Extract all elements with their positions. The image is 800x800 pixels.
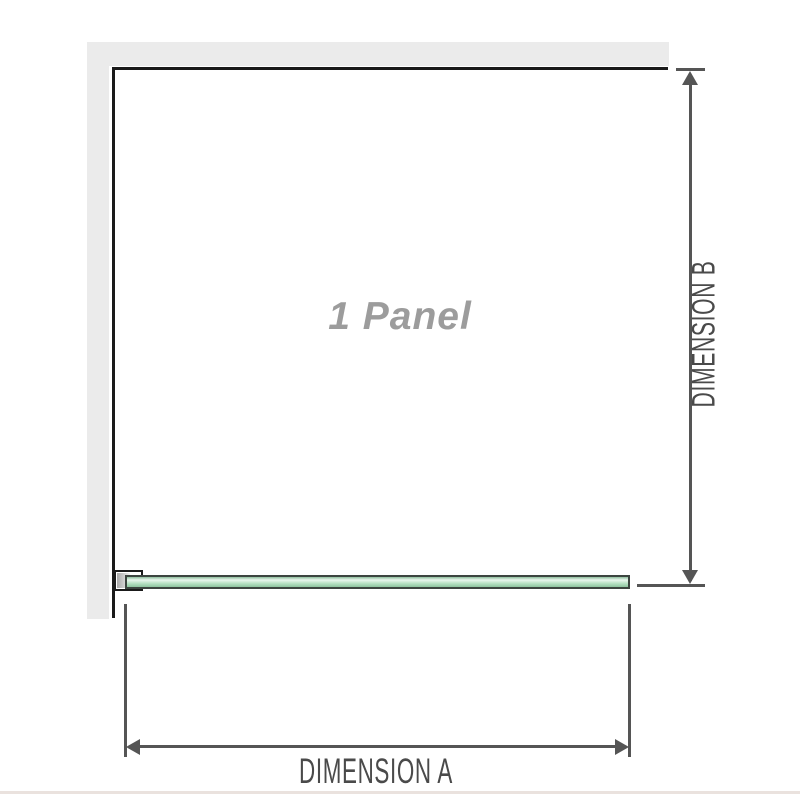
glass-panel-bar xyxy=(125,575,630,589)
panel-count-label: 1 Panel xyxy=(328,295,472,339)
dimension-a-label: DIMENSION A xyxy=(299,752,453,792)
arrow-left-icon xyxy=(126,739,140,755)
dimension-diagram: 1 Panel DIMENSION B DIMENSION A xyxy=(0,0,800,800)
arrow-down-icon xyxy=(682,570,698,584)
dimension-b-bottom-cap xyxy=(637,584,705,587)
extension-line-right xyxy=(628,604,631,757)
panel-outline-left xyxy=(112,67,115,618)
arrow-right-icon xyxy=(615,739,629,755)
panel-outline-top xyxy=(112,67,668,70)
arrow-up-icon xyxy=(682,71,698,85)
dimension-a-line xyxy=(131,745,624,748)
extension-line-left xyxy=(124,604,127,757)
wall-left-band xyxy=(87,42,109,619)
photo-baseline-rule xyxy=(0,791,800,794)
wall-top-band xyxy=(87,42,669,66)
dimension-b-label: DIMENSION B xyxy=(686,261,723,408)
